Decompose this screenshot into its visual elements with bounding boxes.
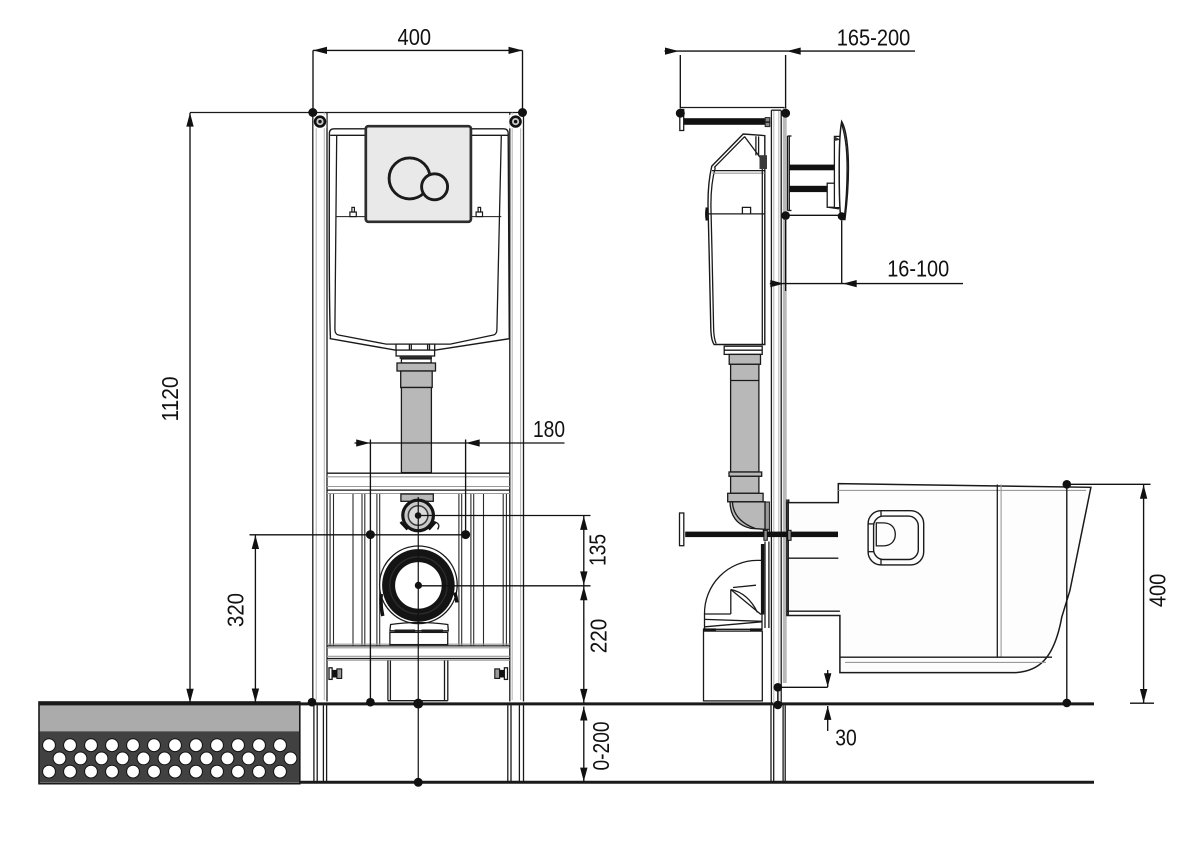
svg-text:400: 400 (1145, 574, 1171, 608)
svg-text:16-100: 16-100 (887, 255, 949, 281)
svg-text:180: 180 (533, 416, 565, 442)
svg-text:220: 220 (586, 619, 612, 654)
svg-text:320: 320 (223, 593, 249, 627)
svg-text:30: 30 (835, 724, 857, 750)
svg-text:165-200: 165-200 (837, 25, 911, 51)
svg-text:135: 135 (585, 534, 611, 566)
svg-text:0-200: 0-200 (588, 722, 614, 771)
svg-text:400: 400 (398, 24, 432, 50)
svg-text:1120: 1120 (157, 377, 183, 422)
